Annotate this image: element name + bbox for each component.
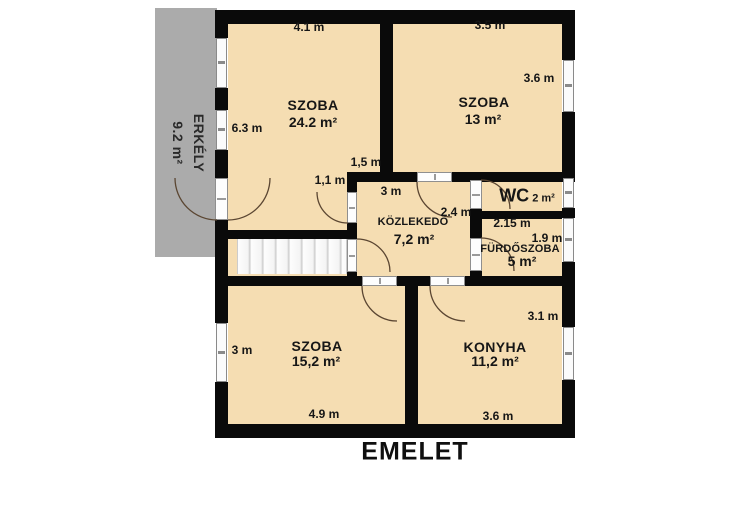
dim-label-furdoszoba-top: 2.15 m [493,216,530,230]
dim-label-szoba-kis-top: 3.5 m [475,18,506,32]
balcony-label: ERKÉLY 9.2 m² [167,114,209,173]
room-label-wc-group: WC 2 m² [499,186,555,207]
area-label-szoba-nagy: 24.2 m² [289,114,337,130]
room-label-szoba-kis: SZOBA [459,94,510,110]
area-label-furdoszoba: 5 m² [508,253,537,269]
dim-label-szoba-also-left: 3 m [232,343,253,357]
door-arc-szoba-nagy [317,192,348,223]
floorplan-canvas: ERKÉLY 9.2 m² 4.1 m 6.3 m SZOBA 24.2 m² … [0,0,730,516]
dim-label-szoba-kis-right: 3.6 m [524,71,555,85]
area-label-szoba-also: 15,2 m² [292,353,340,369]
dim-label-door-11: 1,1 m [315,173,346,187]
door-arc-balcony-in [228,178,270,220]
dim-label-wall-15: 1,5 m [351,155,382,169]
dim-label-konyha-bottom: 3.6 m [483,409,514,423]
floor-title: EMELET [361,438,468,467]
area-label-konyha: 11,2 m² [471,353,518,369]
door-arc-stairs [357,239,390,272]
dim-label-konyha-right: 3.1 m [528,309,559,323]
door-arc-balcony-out [175,178,217,220]
room-label-szoba-also: SZOBA [292,338,343,354]
dim-label-kozlekedo-top: 3 m [381,184,402,198]
area-label-szoba-kis: 13 m² [465,111,502,127]
door-arc-konyha [430,286,465,321]
area-label-kozlekedo: 7,2 m² [394,231,434,247]
room-label-szoba-nagy: SZOBA [288,97,339,113]
dim-label-szoba-also-bottom: 4.9 m [309,407,340,421]
dim-label-szoba-nagy-top: 4.1 m [294,20,325,34]
balcony-name: ERKÉLY [191,114,207,173]
door-arc-szoba-also [362,286,397,321]
balcony-area: 9.2 m² [170,121,186,164]
area-label-wc: 2 m² [532,193,555,205]
room-label-kozlekedo: KÖZLEKEDŐ [378,216,449,228]
room-label-wc: WC [499,186,529,207]
dim-label-szoba-nagy-left: 6.3 m [232,121,263,135]
